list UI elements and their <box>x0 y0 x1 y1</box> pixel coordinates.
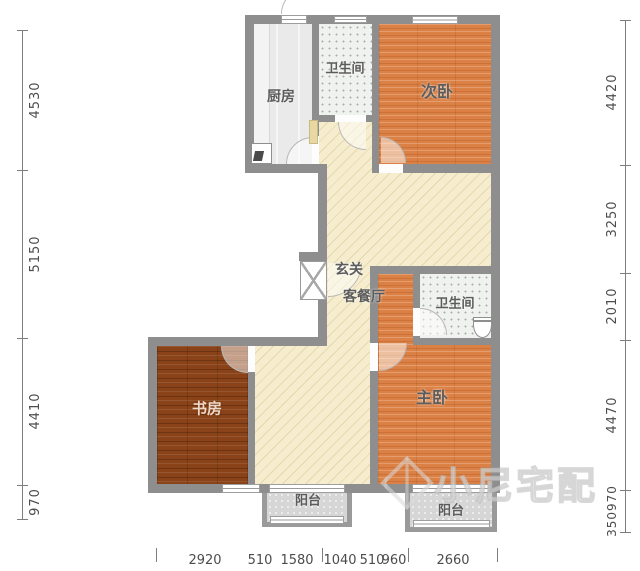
dim-bottom-2920: 2920 <box>188 553 221 568</box>
dimension-tick <box>408 548 409 562</box>
wall-segment <box>372 164 379 173</box>
room-label-balcony-left: 阳台 <box>295 490 321 509</box>
wall-segment <box>492 488 497 532</box>
dimension-tick <box>17 170 28 171</box>
room-label-bath-mid: 卫生间 <box>435 293 474 312</box>
dim-left-5150: 5150 <box>28 235 43 272</box>
dimension-tick <box>620 273 631 274</box>
dimension-tick <box>17 519 28 520</box>
door-opening <box>379 164 403 173</box>
dim-left-4410: 4410 <box>28 392 43 429</box>
dimension-tick <box>17 485 28 486</box>
dimension-tick <box>17 30 28 31</box>
wall-segment <box>413 266 420 308</box>
wall-segment <box>366 115 379 122</box>
dimension-tick <box>620 20 631 21</box>
dim-bottom-2660: 2660 <box>436 553 469 568</box>
wall-segment <box>318 164 327 261</box>
window-symbol <box>413 520 490 528</box>
dimension-tick <box>620 165 631 166</box>
room-label-master: 主卧 <box>416 384 448 408</box>
dimension-line-right <box>625 20 626 533</box>
room-label-kitchen: 厨房 <box>267 86 295 106</box>
dim-right-2010: 2010 <box>605 287 620 324</box>
dimension-tick <box>620 340 631 341</box>
dim-bottom-1580: 1580 <box>280 553 313 568</box>
dim-bottom-1040: 1040 <box>323 553 356 568</box>
dimension-tick <box>620 490 631 491</box>
door-opening <box>335 115 366 122</box>
window-symbol <box>412 16 458 24</box>
dimension-tick <box>17 338 28 339</box>
room-label-entry: 玄关 <box>335 259 363 279</box>
wall-segment <box>413 338 500 345</box>
dim-right-350970: 350970 <box>605 485 619 537</box>
wall-segment <box>403 164 500 173</box>
door-swing <box>281 0 307 14</box>
wall-segment <box>148 337 327 346</box>
door-opening <box>248 346 255 372</box>
dim-left-970: 970 <box>28 488 43 516</box>
window-symbol <box>412 484 489 493</box>
wall-segment <box>405 488 410 532</box>
dim-right-4420: 4420 <box>605 73 620 110</box>
wall-segment <box>370 371 378 492</box>
dimension-line-left <box>22 30 23 520</box>
wall-segment <box>245 164 327 173</box>
dim-bottom-960: 960 <box>382 553 407 568</box>
toilet-lid-icon <box>473 320 492 322</box>
wall-segment <box>248 372 255 492</box>
wall-segment <box>370 266 500 274</box>
window-symbol <box>334 16 367 23</box>
window-symbol <box>281 15 307 24</box>
kitchen-cabinet <box>309 120 318 144</box>
room-label-living: 客餐厅 <box>343 286 385 306</box>
wall-segment <box>148 337 157 492</box>
wall-segment <box>248 337 255 346</box>
room-label-balcony-right: 阳台 <box>438 500 464 519</box>
dimension-tick <box>156 548 157 562</box>
dimension-tick <box>497 548 498 562</box>
dim-left-4530: 4530 <box>28 81 43 118</box>
dim-bottom-510a: 510 <box>248 553 273 568</box>
wall-segment <box>372 20 379 172</box>
room-label-bedroom2: 次卧 <box>421 78 453 102</box>
room-label-bath-top: 卫生间 <box>325 58 364 77</box>
entry-door-leaf <box>300 261 327 300</box>
room-label-study: 书房 <box>192 398 222 419</box>
door-opening <box>413 308 420 336</box>
dim-right-3250: 3250 <box>605 200 620 237</box>
dimension-tick <box>620 532 631 533</box>
wall-segment <box>491 15 500 493</box>
wall-segment <box>299 252 327 261</box>
window-symbol <box>222 484 260 493</box>
window-symbol <box>270 516 344 524</box>
floorplan-canvas: 厨房 卫生间 次卧 玄关 客餐厅 卫生间 书房 主卧 阳台 阳台 小尼宅配 45… <box>0 0 640 571</box>
dim-right-4470: 4470 <box>605 396 620 433</box>
door-opening <box>370 343 378 371</box>
